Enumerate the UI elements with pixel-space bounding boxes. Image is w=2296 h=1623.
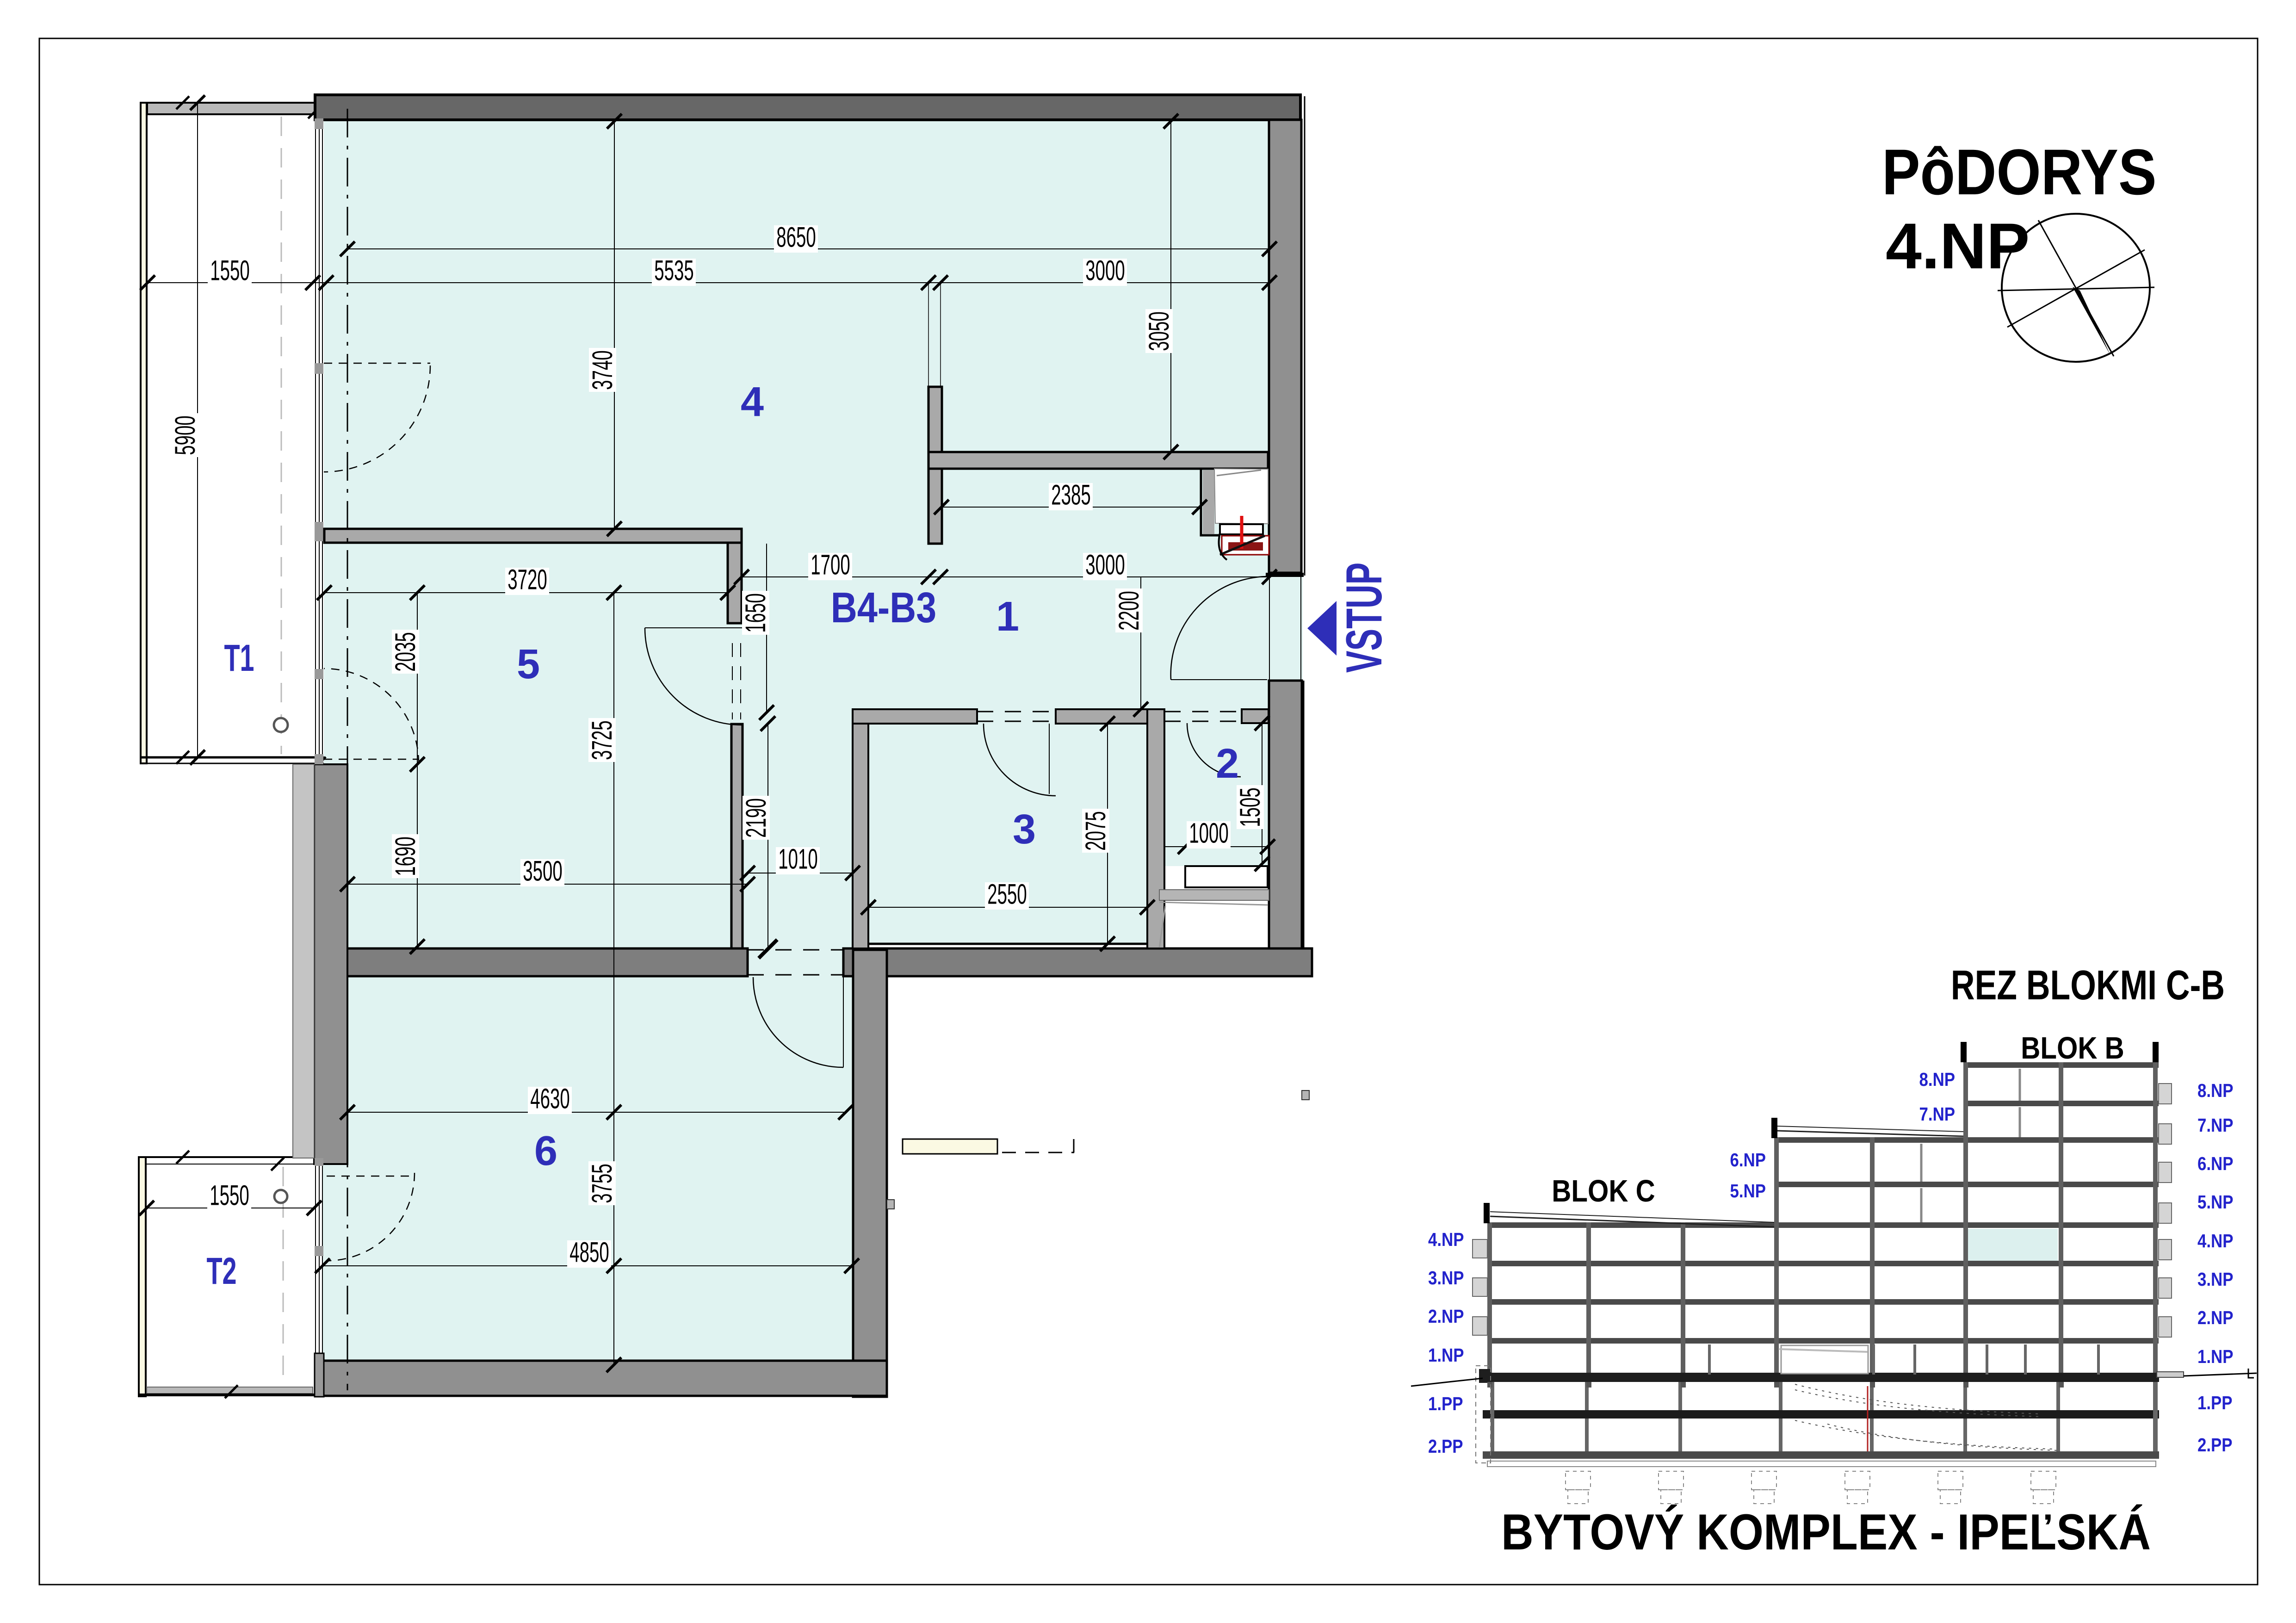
svg-text:3725: 3725 <box>586 720 618 760</box>
svg-text:1550: 1550 <box>210 254 249 286</box>
svg-text:3500: 3500 <box>523 855 562 886</box>
svg-text:BLOK C: BLOK C <box>1552 1174 1655 1208</box>
svg-text:3000: 3000 <box>1085 254 1125 286</box>
svg-text:5: 5 <box>517 641 540 688</box>
svg-text:1550: 1550 <box>210 1179 249 1211</box>
svg-text:4: 4 <box>741 379 764 425</box>
svg-text:2385: 2385 <box>1051 479 1090 510</box>
svg-text:1010: 1010 <box>778 843 817 874</box>
svg-text:6: 6 <box>534 1128 557 1174</box>
svg-text:3: 3 <box>1013 806 1036 853</box>
svg-text:3.NP: 3.NP <box>1428 1268 1464 1288</box>
svg-text:VSTUP: VSTUP <box>1335 563 1392 673</box>
svg-text:4.NP: 4.NP <box>1886 210 2030 282</box>
svg-text:2.PP: 2.PP <box>1428 1436 1463 1457</box>
svg-text:5535: 5535 <box>654 254 693 286</box>
svg-text:1650: 1650 <box>740 593 771 632</box>
svg-text:1505: 1505 <box>1234 787 1266 827</box>
svg-text:7.NP: 7.NP <box>1919 1104 1955 1125</box>
svg-text:6.NP: 6.NP <box>2197 1153 2233 1174</box>
svg-text:T2: T2 <box>206 1250 236 1292</box>
svg-text:5.NP: 5.NP <box>1730 1181 1766 1202</box>
svg-text:BYTOVÝ KOMPLEX - IPEĽSKÁ: BYTOVÝ KOMPLEX - IPEĽSKÁ <box>1501 1503 2151 1560</box>
svg-text:3.NP: 3.NP <box>2197 1269 2233 1290</box>
svg-text:REZ BLOKMI C-B: REZ BLOKMI C-B <box>1951 962 2225 1009</box>
svg-text:4630: 4630 <box>530 1083 569 1114</box>
svg-text:3755: 3755 <box>586 1164 618 1203</box>
svg-text:2.NP: 2.NP <box>2197 1307 2233 1328</box>
svg-text:8.NP: 8.NP <box>1919 1069 1955 1090</box>
svg-text:1690: 1690 <box>390 836 421 876</box>
svg-text:4850: 4850 <box>569 1236 609 1268</box>
svg-text:BLOK B: BLOK B <box>2021 1031 2124 1065</box>
svg-text:8.NP: 8.NP <box>2197 1080 2233 1101</box>
svg-text:2190: 2190 <box>740 798 772 837</box>
svg-text:1700: 1700 <box>811 549 850 580</box>
svg-text:4.NP: 4.NP <box>2197 1231 2233 1251</box>
svg-text:2.PP: 2.PP <box>2197 1435 2233 1456</box>
svg-text:2.NP: 2.NP <box>1428 1306 1464 1327</box>
svg-text:2035: 2035 <box>390 632 421 671</box>
svg-text:6.NP: 6.NP <box>1730 1150 1766 1171</box>
svg-text:3050: 3050 <box>1143 311 1175 351</box>
svg-text:1.PP: 1.PP <box>1428 1394 1463 1414</box>
svg-text:3000: 3000 <box>1085 549 1125 580</box>
svg-text:3720: 3720 <box>507 564 547 595</box>
svg-text:5900: 5900 <box>169 415 201 455</box>
svg-text:5.NP: 5.NP <box>2197 1192 2233 1213</box>
svg-text:2075: 2075 <box>1080 811 1111 850</box>
svg-text:1000: 1000 <box>1189 817 1228 849</box>
svg-text:1.NP: 1.NP <box>1428 1345 1464 1366</box>
svg-text:2550: 2550 <box>987 878 1027 910</box>
svg-text:7.NP: 7.NP <box>2197 1115 2233 1136</box>
svg-text:3740: 3740 <box>587 350 618 390</box>
svg-text:T1: T1 <box>224 637 254 679</box>
svg-text:8650: 8650 <box>776 221 816 253</box>
svg-text:B4-B3: B4-B3 <box>831 584 936 632</box>
svg-text:4.NP: 4.NP <box>1428 1229 1464 1250</box>
svg-text:2: 2 <box>1216 741 1239 787</box>
svg-text:2200: 2200 <box>1113 591 1145 630</box>
svg-text:1: 1 <box>996 594 1019 640</box>
svg-text:1.PP: 1.PP <box>2197 1393 2233 1413</box>
svg-text:1.NP: 1.NP <box>2197 1346 2233 1367</box>
svg-text:PôDORYS: PôDORYS <box>1882 136 2157 208</box>
